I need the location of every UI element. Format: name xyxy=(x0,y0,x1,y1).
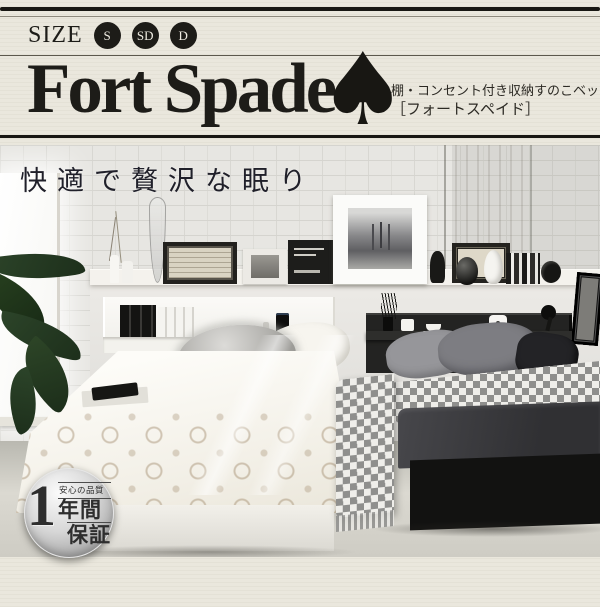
leaning-black-frame xyxy=(571,272,600,346)
reed-diffuser-bottle xyxy=(383,317,393,331)
top-rule-thin xyxy=(0,16,600,17)
small-white-photo-frame xyxy=(243,249,287,284)
black-record-sleeve xyxy=(288,240,334,284)
product-subtitle: 棚・コンセント付き収納すのこベッド xyxy=(391,80,600,99)
white-bed-shadow xyxy=(58,545,358,557)
book-stack xyxy=(506,253,540,284)
white-books xyxy=(158,307,194,337)
badge-period-label: 年間 xyxy=(58,499,111,521)
white-vase xyxy=(110,255,119,283)
black-bed-shadow xyxy=(372,521,600,537)
black-bed-base xyxy=(410,454,600,531)
black-urn-vase xyxy=(430,251,445,283)
product-name-kana: ［フォートスペイド］ xyxy=(391,98,540,119)
bridge-photo xyxy=(348,208,412,269)
black-books xyxy=(120,305,156,337)
black-certificate-frame xyxy=(163,242,237,284)
brand-title: Fort Spade xyxy=(27,54,334,125)
black-decor-object xyxy=(541,261,561,283)
dark-glass-vase xyxy=(456,257,478,285)
size-badge-double: D xyxy=(170,22,197,49)
large-white-frame-bridge-photo xyxy=(333,195,427,284)
photo-print xyxy=(251,255,279,278)
top-rule-thick xyxy=(0,7,600,11)
bridge-towers xyxy=(380,222,382,248)
warranty-badge-content: 1 安心の品質 年間 保証 xyxy=(27,479,111,546)
reed-diffuser-sticks xyxy=(381,293,397,319)
white-vase xyxy=(122,261,133,283)
white-gourd-vase xyxy=(484,250,503,284)
size-label: SIZE xyxy=(28,22,83,49)
size-badge-semi-double: SD xyxy=(132,22,159,49)
warranty-badge: 1 安心の品質 年間 保証 xyxy=(24,468,114,558)
warranty-years-number: 1 xyxy=(27,479,56,532)
candle-cup xyxy=(401,319,414,331)
badge-warranty-label: 保証 xyxy=(67,522,111,546)
size-badge-single: S xyxy=(94,22,121,49)
checkered-blanket-drape xyxy=(336,374,394,518)
size-row: SIZE S SD D xyxy=(28,22,197,49)
certificate-print xyxy=(169,248,231,278)
header-bottom-rule xyxy=(0,135,600,138)
photo-headline: 快適で贅沢な眠り xyxy=(20,159,316,198)
fort-spade-ad-banner: SIZE S SD D Fort Spade ♠ 棚・コンセント付き収納すのこベ… xyxy=(0,0,600,607)
badge-quality-label: 安心の品質 xyxy=(58,482,111,499)
